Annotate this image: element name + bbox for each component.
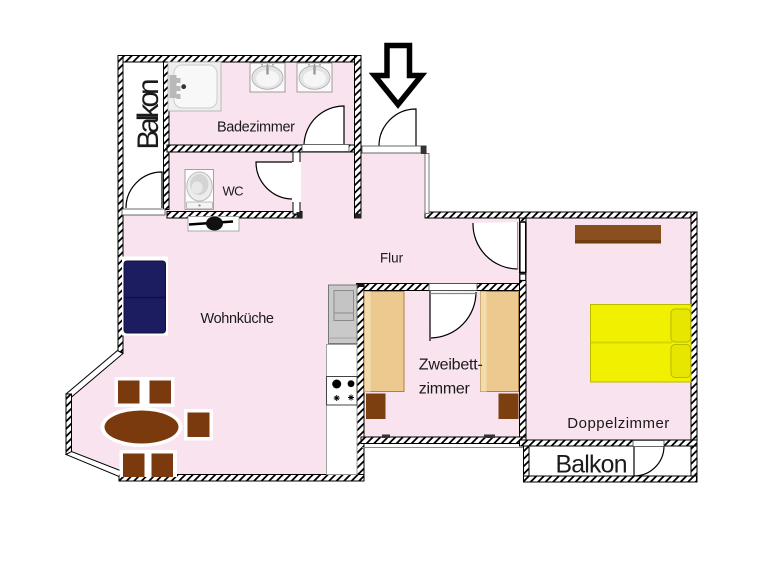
svg-text:Badezimmer: Badezimmer bbox=[217, 119, 295, 135]
svg-text:Doppelzimmer: Doppelzimmer bbox=[567, 415, 669, 432]
svg-text:Balkon: Balkon bbox=[132, 79, 165, 150]
svg-text:Flur: Flur bbox=[380, 250, 404, 265]
svg-text:zimmer: zimmer bbox=[419, 381, 471, 398]
svg-text:Balkon: Balkon bbox=[556, 451, 628, 478]
svg-text:WC: WC bbox=[223, 184, 244, 199]
svg-text:Zweibett-: Zweibett- bbox=[419, 357, 483, 374]
svg-text:Wohnküche: Wohnküche bbox=[201, 311, 275, 327]
